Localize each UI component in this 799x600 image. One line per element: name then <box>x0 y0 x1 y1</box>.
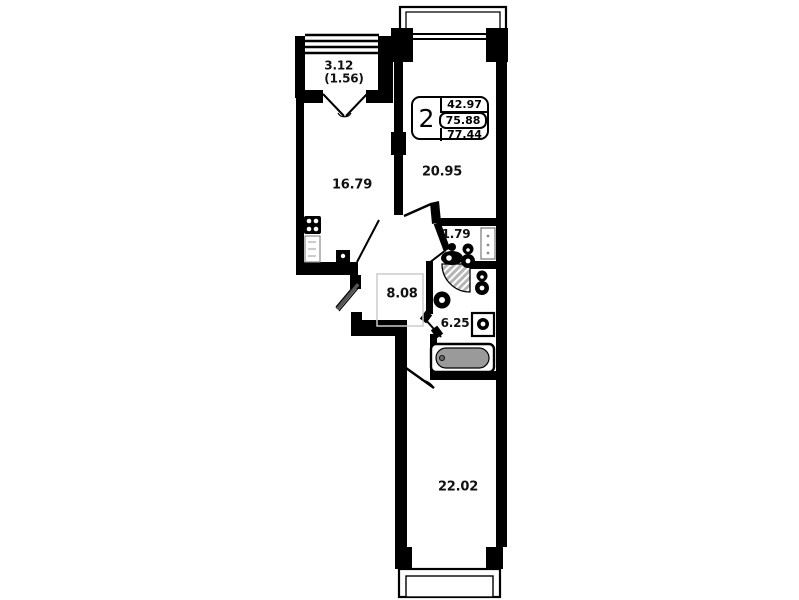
apartment-stamp: 2 42.97 75.88 77.44 <box>411 96 489 140</box>
stove-icon <box>304 216 321 234</box>
entry-door <box>336 282 360 311</box>
room-label-hallway: 8.08 <box>386 287 417 302</box>
stamp-living-area: 42.97 <box>440 98 487 113</box>
wc-toilet-icon <box>461 244 475 269</box>
room-label-wc: 1.79 <box>442 227 471 241</box>
balcony-area: 3.12 <box>324 59 353 73</box>
stamp-total-area: 77.44 <box>440 128 487 141</box>
bathtub-icon <box>431 344 494 372</box>
bathroom-sink-icon <box>434 292 451 309</box>
room-label-bathroom: 6.25 <box>441 316 470 330</box>
room-label-balcony: 3.12 (1.56) <box>324 59 363 86</box>
kitchen-appliance-icon <box>336 250 350 262</box>
room-label-kitchen: 16.79 <box>332 178 372 193</box>
wc-cabinet-icon <box>481 228 495 259</box>
washing-machine-icon <box>472 313 494 336</box>
balcony-area-reduced: (1.56) <box>324 72 363 86</box>
balcony-railing <box>305 35 379 53</box>
floor-plan-page: 3.12 (1.56) 16.79 20.95 1.79 8.08 6.25 2… <box>0 0 799 600</box>
bottom-window <box>399 569 500 597</box>
door-swing-arc <box>442 264 470 292</box>
room-label-living-room: 20.95 <box>422 165 462 180</box>
kitchen-sink-icon <box>305 236 320 262</box>
stamp-room-count: 2 <box>413 98 440 138</box>
room-label-bedroom: 22.02 <box>438 480 478 495</box>
stamp-apartment-area: 75.88 <box>439 112 487 129</box>
bathroom-toilet-icon <box>475 271 489 296</box>
